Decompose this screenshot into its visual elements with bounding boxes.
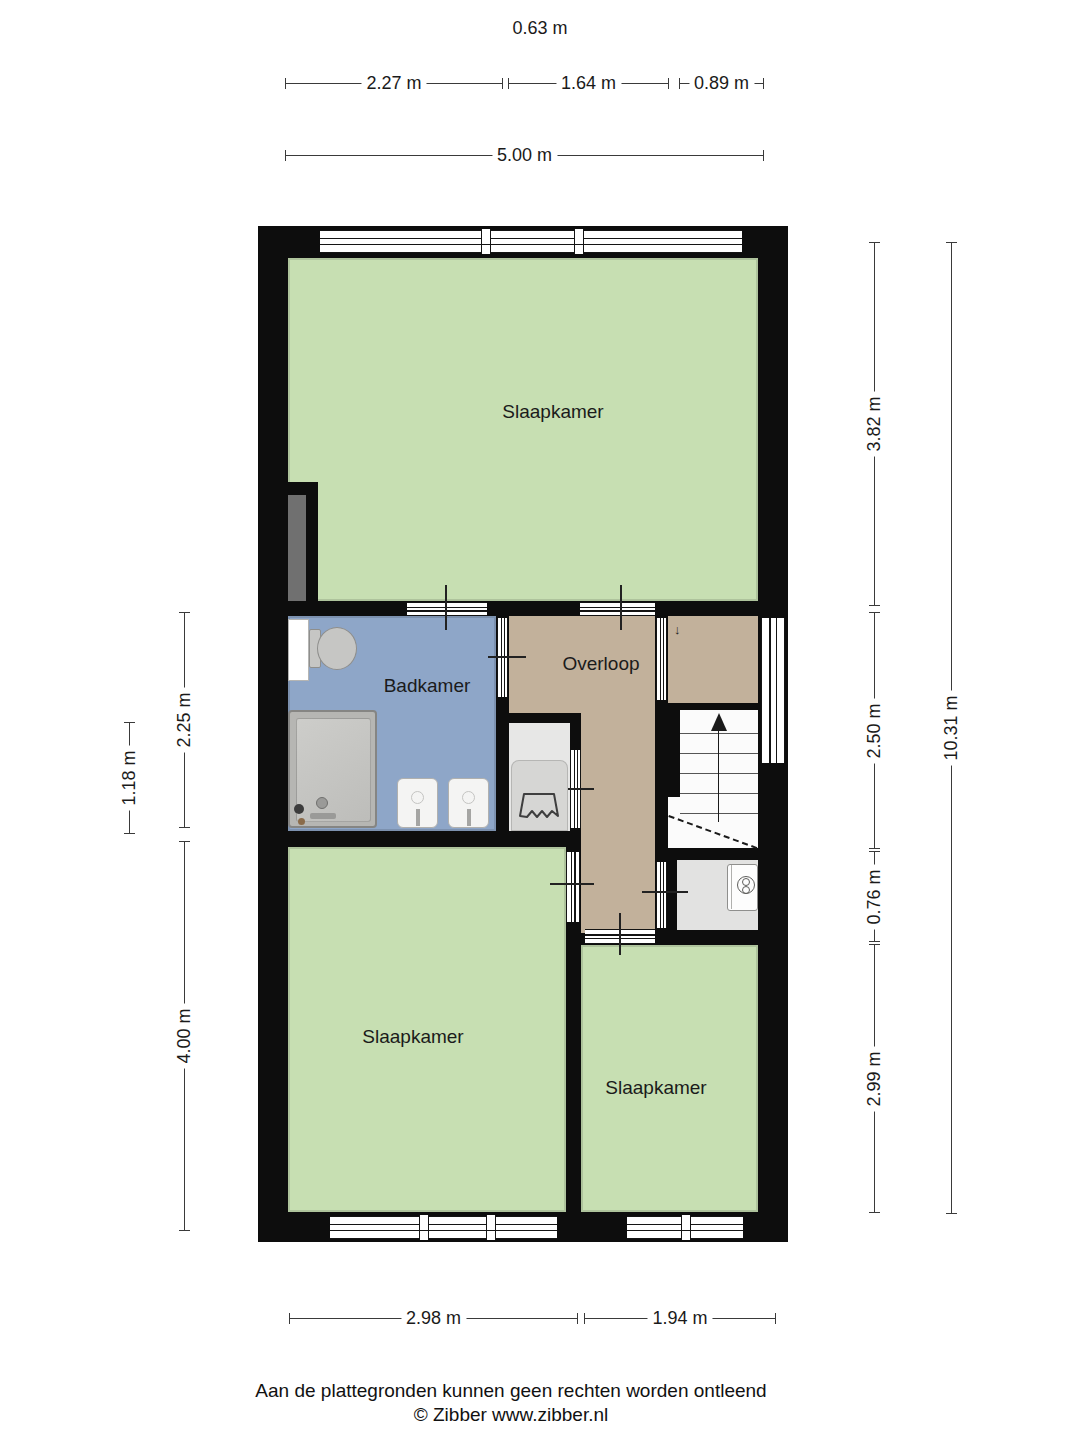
window-mullion — [419, 1215, 429, 1240]
sink-faucet — [467, 809, 471, 826]
bathroom-shelf — [288, 619, 309, 681]
sink-faucet — [416, 809, 420, 826]
dimension-right-1031: 10.31 m — [951, 243, 952, 1213]
window-bottom-left — [330, 1216, 557, 1239]
door-tick — [619, 913, 621, 955]
dimension-label: 2.25 m — [175, 687, 195, 752]
door-bathroom-landing — [497, 618, 508, 697]
stairs-up-arrow-icon — [711, 713, 727, 731]
dimension-top-089: 0.89 m — [680, 83, 763, 84]
stairwell-floor-ext — [668, 797, 680, 848]
dimension-label: 1.18 m — [120, 745, 140, 810]
door-boiler-room — [656, 862, 667, 928]
room-bedroom-top — [288, 258, 758, 601]
boiler-emblem-bottom — [742, 886, 750, 894]
sink-icon — [448, 778, 489, 828]
door-landing-stairs — [656, 618, 667, 700]
sink-icon — [397, 778, 438, 828]
stairs — [680, 710, 758, 848]
shower-knob-icon — [316, 797, 328, 809]
dimension-left-225: 2.25 m — [184, 613, 185, 827]
room-label-bedroom-right: Slaapkamer — [605, 1077, 706, 1099]
boiler-door-line — [731, 865, 732, 909]
door-tick — [488, 656, 526, 658]
dimension-top-500: 5.00 m — [286, 155, 763, 156]
door-bedroomtop-landing — [580, 602, 655, 616]
door-tick — [620, 585, 622, 630]
shower-icon — [288, 710, 377, 828]
window-top — [320, 230, 742, 253]
room-label-bedroom-left: Slaapkamer — [362, 1026, 463, 1048]
dimension-label: 5.00 m — [492, 146, 557, 166]
laundry-basket-icon — [516, 790, 562, 824]
room-label-landing: Overloop — [562, 653, 639, 675]
sink-basin — [411, 791, 424, 804]
dimension-label: 2.27 m — [361, 74, 426, 94]
toilet-bowl-icon — [317, 627, 357, 670]
duct — [288, 495, 306, 601]
window-mullion — [681, 1215, 691, 1240]
dimension-label: 4.00 m — [175, 1003, 195, 1068]
door-tick — [445, 585, 447, 630]
window-right — [761, 618, 785, 763]
dimension-right-250: 2.50 m — [874, 613, 875, 848]
dimension-top-164: 1.64 m — [509, 83, 668, 84]
dimension-left-400: 4.00 m — [184, 842, 185, 1230]
dimension-label: 0.89 m — [689, 74, 754, 94]
shower-bar-icon — [310, 813, 336, 819]
boiler-icon — [727, 864, 758, 911]
door-landing-bedroomleft — [566, 852, 580, 922]
dimension-label: 2.50 m — [865, 698, 885, 763]
landing-right-strip — [668, 616, 758, 703]
door-tick — [642, 891, 688, 893]
dimension-bottom-298: 2.98 m — [290, 1318, 577, 1319]
stairs-cut-line — [668, 815, 757, 849]
window-bottom-right — [627, 1216, 743, 1239]
dimension-label: 0.76 m — [865, 864, 885, 929]
dimension-label: 3.82 m — [865, 391, 885, 456]
window-mullion — [486, 1215, 496, 1240]
dimension-label: 10.31 m — [942, 690, 962, 765]
shower-faucet-icon — [294, 804, 304, 814]
stairs-direction-line — [718, 730, 719, 822]
dimension-label: 1.94 m — [647, 1309, 712, 1329]
dimension-label-063: 0.63 m — [512, 18, 567, 39]
room-label-bathroom: Badkamer — [384, 675, 471, 697]
door-tick — [550, 883, 594, 885]
sink-basin — [462, 791, 475, 804]
window-mullion — [574, 229, 584, 254]
room-label-bedroom-top: Slaapkamer — [502, 401, 603, 423]
window-mullion — [481, 229, 491, 254]
dimension-top-227: 2.27 m — [286, 83, 502, 84]
dimension-right-299: 2.99 m — [874, 945, 875, 1212]
dimension-right-076: 0.76 m — [874, 852, 875, 941]
shower-tray — [296, 718, 371, 822]
dimension-label: 2.98 m — [401, 1309, 466, 1329]
stairs-down-glyph: ↓ — [674, 622, 681, 637]
dimension-label: 1.64 m — [556, 74, 621, 94]
boiler-emblem-top — [742, 878, 750, 886]
dimension-right-382: 3.82 m — [874, 243, 875, 605]
door-bedroomtop-bathroom — [407, 602, 487, 616]
footer-credit: © Zibber www.zibber.nl — [414, 1404, 609, 1426]
shower-drain-icon — [298, 818, 305, 825]
footer-disclaimer: Aan de plattegronden kunnen geen rechten… — [255, 1380, 766, 1402]
floorplan-canvas: ↓ Slaapkamer Badkamer Overloop Slaapkame… — [0, 0, 1080, 1440]
dimension-bottom-194: 1.94 m — [585, 1318, 775, 1319]
dimension-label: 2.99 m — [865, 1046, 885, 1111]
dimension-left-118: 1.18 m — [129, 723, 130, 833]
